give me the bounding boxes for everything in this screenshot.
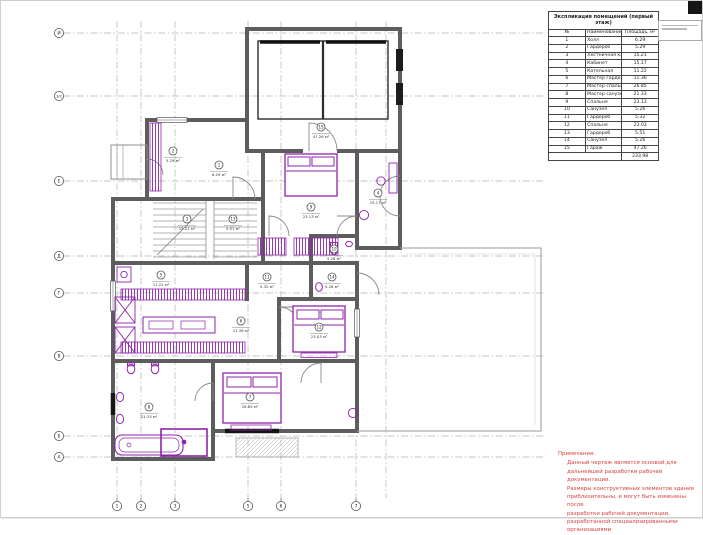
room-number: 12: [549, 122, 586, 130]
notes-title: Примечания:: [558, 450, 703, 458]
room-name: Спальня: [585, 99, 622, 107]
room-area: 15.21: [622, 52, 659, 60]
room-number: 6: [549, 75, 586, 83]
room-area-text: 6.29 м²: [212, 172, 227, 177]
room-number-text: 8: [148, 405, 151, 410]
room-number: 10: [549, 106, 586, 114]
room-number-text: 14: [329, 275, 335, 280]
grid-label-7: 7: [355, 504, 358, 510]
bed: [285, 154, 337, 196]
room-number: 4: [549, 60, 586, 68]
room-area: 15.17: [622, 60, 659, 68]
room-number: 9: [549, 99, 586, 107]
room-number-text: 1: [218, 163, 221, 168]
room-name: Мастер спальня: [585, 83, 622, 91]
room-area: 5.32: [622, 114, 659, 122]
room-name: Мастер санузел: [585, 91, 622, 99]
grid-label-Д: Д: [57, 254, 61, 260]
room-area: 5.26: [622, 137, 659, 145]
boiler: [117, 267, 131, 282]
room-area-text: 5.32 м²: [260, 284, 275, 289]
table-row: 1Холл6.29: [549, 37, 659, 45]
bed: [293, 306, 345, 358]
room-area: 11.22: [622, 68, 659, 76]
table-row: 15Гараж47.26: [549, 145, 659, 153]
note-line: Данный чертеж является основой для: [567, 459, 703, 467]
schedule-total-row: 233.98: [549, 153, 659, 161]
table-row: 6Мастер гардероб11.36: [549, 75, 659, 83]
room-area: 5.26: [622, 106, 659, 114]
sink: [346, 241, 353, 246]
room-number: 2: [549, 44, 586, 52]
caption-text-bar: [662, 25, 698, 27]
table-row: 8Мастер санузел21.33: [549, 91, 659, 99]
stair-arrow: [157, 209, 203, 255]
room-number: 5: [549, 68, 586, 76]
table-row: 12Спальня23.03: [549, 122, 659, 130]
note-line: приблизительны, и могут быть изменены по…: [567, 493, 703, 510]
room-area-text: 11.36 м²: [233, 328, 250, 333]
grid-label-И: И: [57, 31, 60, 37]
room-label-5: 511.22 м²: [152, 271, 170, 287]
room-label-3: 315.21 м²: [178, 215, 196, 231]
room-schedule-table: Экспликация помещений (первый этаж) № На…: [548, 11, 659, 161]
room-name: Спальня: [585, 122, 622, 130]
staircase: [153, 201, 257, 259]
room-area: 26.85: [622, 83, 659, 91]
room-name: Лестничная клетка: [585, 52, 622, 60]
room-number: 15: [549, 145, 586, 153]
total-area-value: 233.98: [622, 153, 659, 161]
table-row: 5Котельная11.22: [549, 68, 659, 76]
room-number-text: 13: [230, 217, 236, 222]
col-header-number: №: [549, 29, 586, 37]
room-area: 5.29: [622, 44, 659, 52]
grid-label-Е: Е: [58, 179, 61, 185]
room-label-1: 16.29 м²: [210, 161, 228, 177]
room-name: Кабинет: [585, 60, 622, 68]
grid-label-Г: Г: [58, 291, 61, 297]
room-label-9: 923.13 м²: [302, 203, 320, 219]
room-name: Гардероб: [585, 114, 622, 122]
garage-window: [396, 49, 403, 71]
grid-label-6: 6: [280, 504, 283, 510]
note-line: разработки рабочей документации,: [567, 510, 703, 518]
toilet: [127, 363, 135, 374]
room-area-text: 5.51 м²: [226, 226, 241, 231]
garage: [258, 41, 403, 119]
room-number-text: 15: [318, 125, 324, 130]
room-area: 11.36: [622, 75, 659, 83]
plant: [359, 210, 368, 219]
room-number: 11: [549, 114, 586, 122]
room-area-text: 5.26 м²: [327, 256, 342, 261]
room-label-15: 1547.26 м²: [312, 123, 330, 139]
room-label-2: 25.29 м²: [164, 147, 182, 163]
title-block-caption: [658, 20, 702, 41]
table-row: 2Гардероб5.29: [549, 44, 659, 52]
room-label-6: 611.36 м²: [232, 317, 250, 333]
room-number-text: 4: [377, 191, 380, 196]
notes-block: Примечания: Данный чертеж является основ…: [558, 450, 703, 535]
room-number-text: 9: [310, 205, 313, 210]
caption-text-bar: [662, 28, 687, 30]
room-label-14: 145.26 м²: [323, 273, 341, 289]
wardrobe-rail: [121, 342, 245, 353]
room-number-text: 12: [316, 325, 322, 330]
drawing-sheet: И3/2ЕДГВБА123567: [0, 0, 703, 518]
grid-label-2: 2: [140, 504, 143, 510]
room-name: Гараж: [585, 145, 622, 153]
wardrobe-island: [143, 317, 215, 333]
table-row: 3Лестничная клетка15.21: [549, 52, 659, 60]
room-area: 5.51: [622, 130, 659, 138]
room-number: 3: [549, 52, 586, 60]
table-row: 7Мастер спальня26.85: [549, 83, 659, 91]
room-area-text: 21.33 м²: [141, 414, 158, 419]
bidet: [151, 363, 159, 374]
room-label-8: 821.33 м²: [140, 403, 158, 419]
room-name: Гардероб: [585, 44, 622, 52]
room-label-11: 115.32 м²: [258, 273, 276, 289]
wardrobe-shelves: [150, 123, 161, 191]
room-number-text: 10: [331, 247, 337, 252]
room-number-text: 3: [186, 217, 189, 222]
corridor-walls: [247, 263, 311, 299]
table-row: 9Спальня23.13: [549, 99, 659, 107]
table-row: 13Гардероб5.51: [549, 130, 659, 138]
wardrobe-rail: [121, 289, 245, 300]
room-area: 23.13: [622, 99, 659, 107]
room-area-text: 5.26 м²: [325, 284, 340, 289]
room-number-text: 5: [160, 273, 163, 278]
room-name: Холл: [585, 37, 622, 45]
logo-mark: [688, 1, 702, 14]
toilet: [316, 283, 323, 292]
entry-block-walls: [147, 120, 247, 199]
garage-window: [396, 83, 403, 105]
room-area-text: 23.03 м²: [311, 334, 328, 339]
room-number: 8: [549, 91, 586, 99]
room-area-text: 15.17 м²: [370, 200, 387, 205]
room-number-text: 7: [249, 395, 252, 400]
room-name: Санузел: [585, 106, 622, 114]
room-area-text: 26.85 м²: [242, 404, 259, 409]
room-number: 7: [549, 83, 586, 91]
grid-label-3: 3: [174, 504, 177, 510]
bed: [223, 373, 281, 430]
room-area: 21.33: [622, 91, 659, 99]
room-number-text: 2: [172, 149, 175, 154]
room-label-4: 415.17 м²: [369, 189, 387, 205]
grid-label-3/2: 3/2: [56, 95, 61, 99]
sink: [116, 414, 123, 423]
table-row: 14Санузел5.26: [549, 137, 659, 145]
room-name: Котельная: [585, 68, 622, 76]
note-line: Размеры конструктивных элементов здания: [567, 485, 703, 493]
bathtub: [115, 435, 183, 455]
room-area: 47.26: [622, 145, 659, 153]
room-area-text: 15.21 м²: [179, 226, 196, 231]
room-area-text: 47.26 м²: [313, 134, 330, 139]
grid-label-1: 1: [116, 504, 119, 510]
table-row: 10Санузел5.26: [549, 106, 659, 114]
table-row: 11Гардероб5.32: [549, 114, 659, 122]
room-number-text: 11: [264, 275, 270, 280]
closet: [258, 238, 286, 255]
room-area-text: 23.13 м²: [303, 214, 320, 219]
room-number: 14: [549, 137, 586, 145]
room-area-text: 11.22 м²: [153, 282, 170, 287]
room-name: Гардероб: [585, 130, 622, 138]
total-spacer: [549, 153, 622, 161]
note-line: разработанной специализированными: [567, 518, 703, 526]
room-area: 23.03: [622, 122, 659, 130]
schedule-title: Экспликация помещений (первый этаж): [549, 12, 659, 30]
grid-label-Б: Б: [57, 434, 60, 440]
porch: [111, 145, 147, 179]
room-number: 1: [549, 37, 586, 45]
col-header-name: Наименование: [585, 29, 622, 37]
room-area-text: 5.29 м²: [166, 158, 181, 163]
note-line: дальнейшей разработки рабочей документац…: [567, 468, 703, 485]
table-row: 4Кабинет15.17: [549, 60, 659, 68]
room-number-text: 6: [240, 319, 243, 324]
room-label-13: 135.51 м²: [224, 215, 242, 231]
sink: [116, 392, 123, 401]
terrace-steps: [236, 438, 298, 457]
col-header-area: Площадь, м²: [622, 29, 659, 37]
room-name: Санузел: [585, 137, 622, 145]
grid-label-5: 5: [247, 504, 250, 510]
room-area: 6.29: [622, 37, 659, 45]
terrace: [236, 248, 541, 457]
room-number: 13: [549, 130, 586, 138]
room-name: Мастер гардероб: [585, 75, 622, 83]
note-line: организациями: [567, 526, 703, 534]
grid-label-А: А: [57, 455, 60, 461]
grid-label-В: В: [57, 354, 60, 360]
